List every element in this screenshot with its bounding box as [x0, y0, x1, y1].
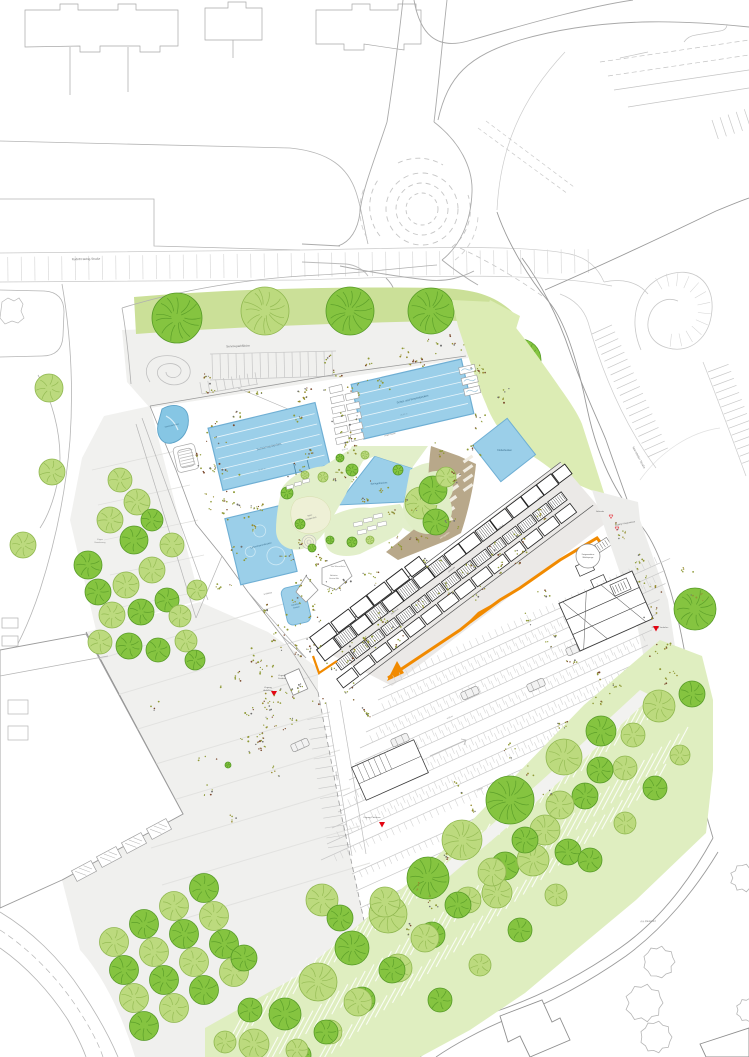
svg-text:Rudolf-Harbig-Straße: Rudolf-Harbig-Straße	[72, 257, 101, 262]
svg-text:Erweiterung: Erweiterung	[95, 541, 106, 544]
svg-text:Zugang: Zugang	[278, 675, 286, 677]
svg-text:Anlieferer: Anlieferer	[263, 689, 273, 692]
svg-text:Twin Wasserfläche: Twin Wasserfläche	[330, 566, 345, 568]
svg-text:Anbieter: Anbieter	[330, 574, 338, 577]
svg-text:Freigewordene: Freigewordene	[582, 553, 595, 556]
svg-text:Zugang: Zugang	[264, 687, 272, 689]
svg-text:Zugang Parkhaus: Zugang Parkhaus	[363, 816, 381, 819]
svg-text:Am Riedwald: Am Riedwald	[640, 919, 656, 924]
svg-text:Kinderbecken: Kinderbecken	[497, 449, 512, 452]
svg-text:Mittelspange: Mittelspange	[583, 556, 594, 559]
svg-text:Geländer: Geländer	[596, 511, 605, 513]
svg-text:Freibad: Freibad	[278, 677, 286, 680]
svg-text:Serviceparkfläche: Serviceparkfläche	[226, 344, 250, 349]
svg-text:Gastro-Mei: Gastro-Mei	[329, 577, 339, 580]
svg-text:Zügen: Zügen	[97, 539, 103, 541]
